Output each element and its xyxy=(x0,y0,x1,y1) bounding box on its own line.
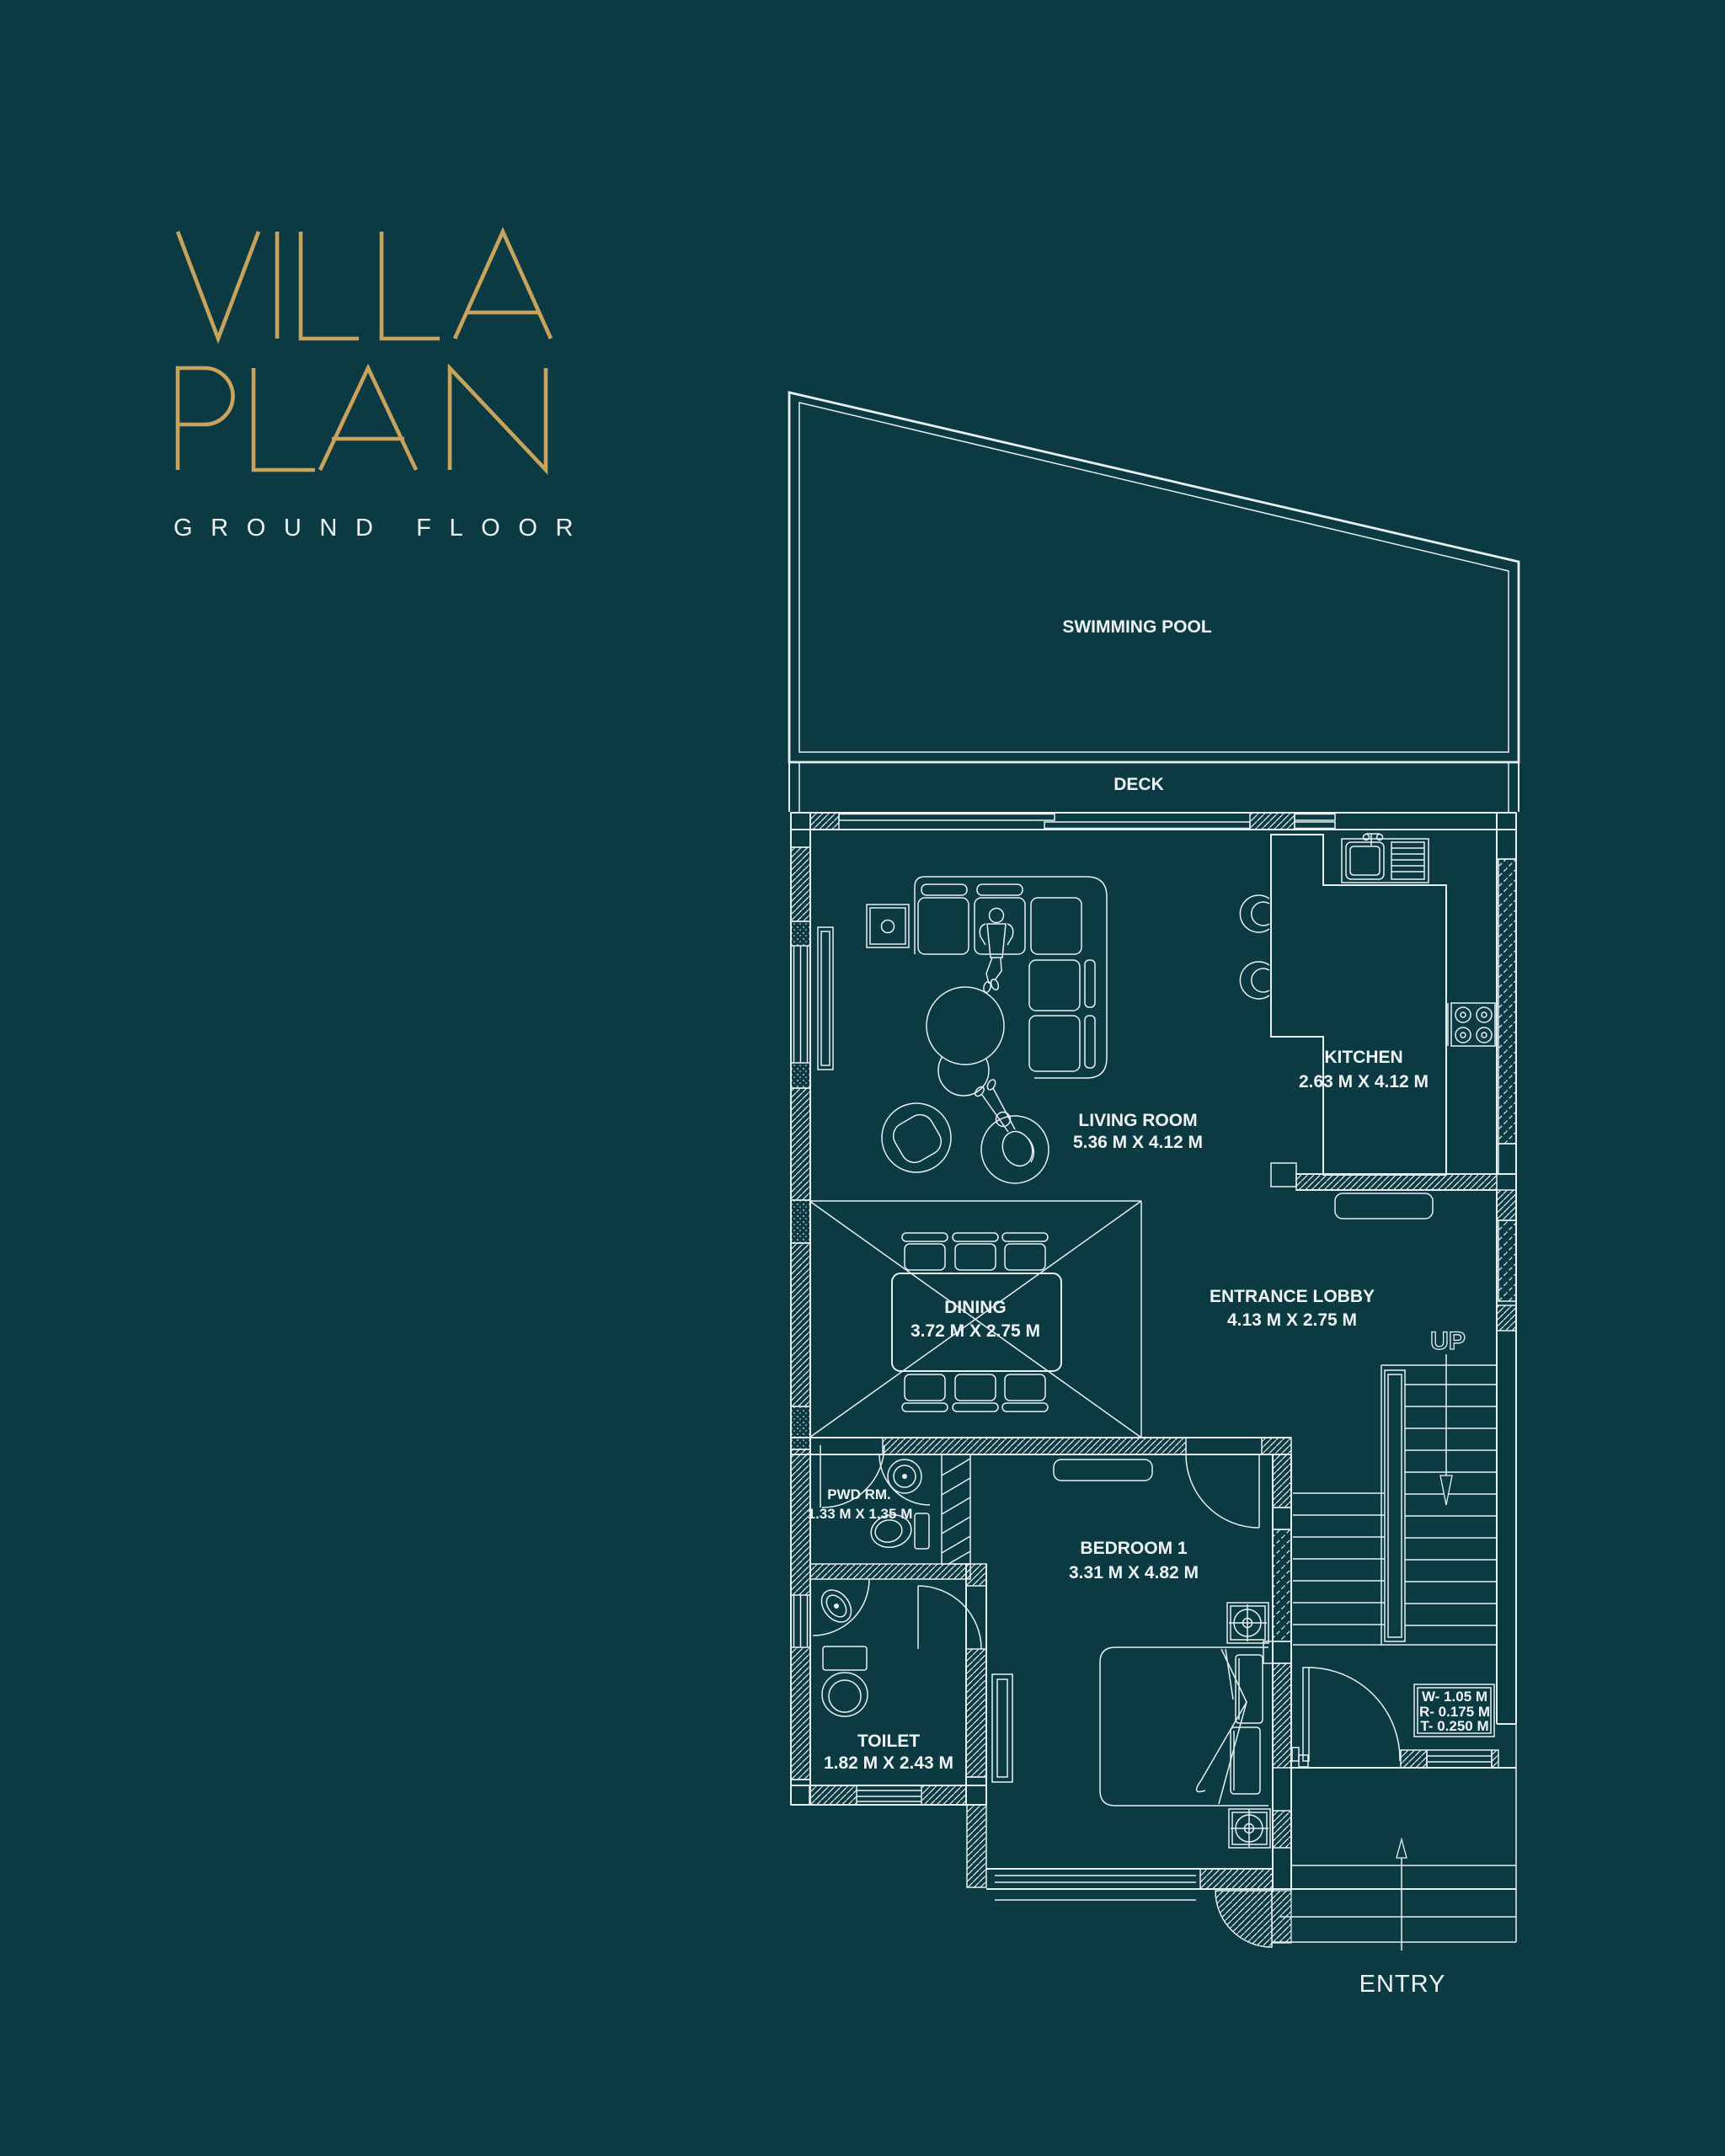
svg-text:DECK: DECK xyxy=(1114,775,1164,794)
svg-text:1.33 M X 1.35 M: 1.33 M X 1.35 M xyxy=(808,1506,913,1522)
svg-text:UP: UP xyxy=(1430,1327,1466,1355)
svg-text:SWIMMING POOL: SWIMMING POOL xyxy=(1062,617,1211,637)
svg-text:PWD RM.: PWD RM. xyxy=(827,1486,891,1502)
svg-text:ENTRY: ENTRY xyxy=(1359,1971,1446,1998)
svg-text:5.36 M X 4.12 M: 5.36 M X 4.12 M xyxy=(1073,1133,1203,1152)
svg-text:LIVING ROOM: LIVING ROOM xyxy=(1078,1111,1197,1130)
svg-text:GROUND FLOOR: GROUND FLOOR xyxy=(174,515,591,542)
svg-text:1.82 M X 2.43 M: 1.82 M X 2.43 M xyxy=(824,1753,953,1773)
svg-text:DINING: DINING xyxy=(944,1298,1007,1317)
svg-text:ENTRANCE LOBBY: ENTRANCE LOBBY xyxy=(1210,1287,1375,1306)
svg-text:3.72 M X 2.75 M: 3.72 M X 2.75 M xyxy=(911,1321,1040,1341)
svg-text:TOILET: TOILET xyxy=(857,1732,920,1751)
svg-text:W- 1.05 M: W- 1.05 M xyxy=(1422,1689,1487,1705)
svg-text:4.13 M X 2.75 M: 4.13 M X 2.75 M xyxy=(1227,1310,1357,1330)
svg-text:2.63 M X 4.12 M: 2.63 M X 4.12 M xyxy=(1299,1072,1429,1091)
svg-text:T- 0.250 M: T- 0.250 M xyxy=(1420,1718,1488,1734)
svg-text:BEDROOM 1: BEDROOM 1 xyxy=(1080,1539,1188,1558)
svg-text:3.31 M X 4.82 M: 3.31 M X 4.82 M xyxy=(1069,1563,1199,1582)
svg-text:KITCHEN: KITCHEN xyxy=(1324,1048,1402,1067)
